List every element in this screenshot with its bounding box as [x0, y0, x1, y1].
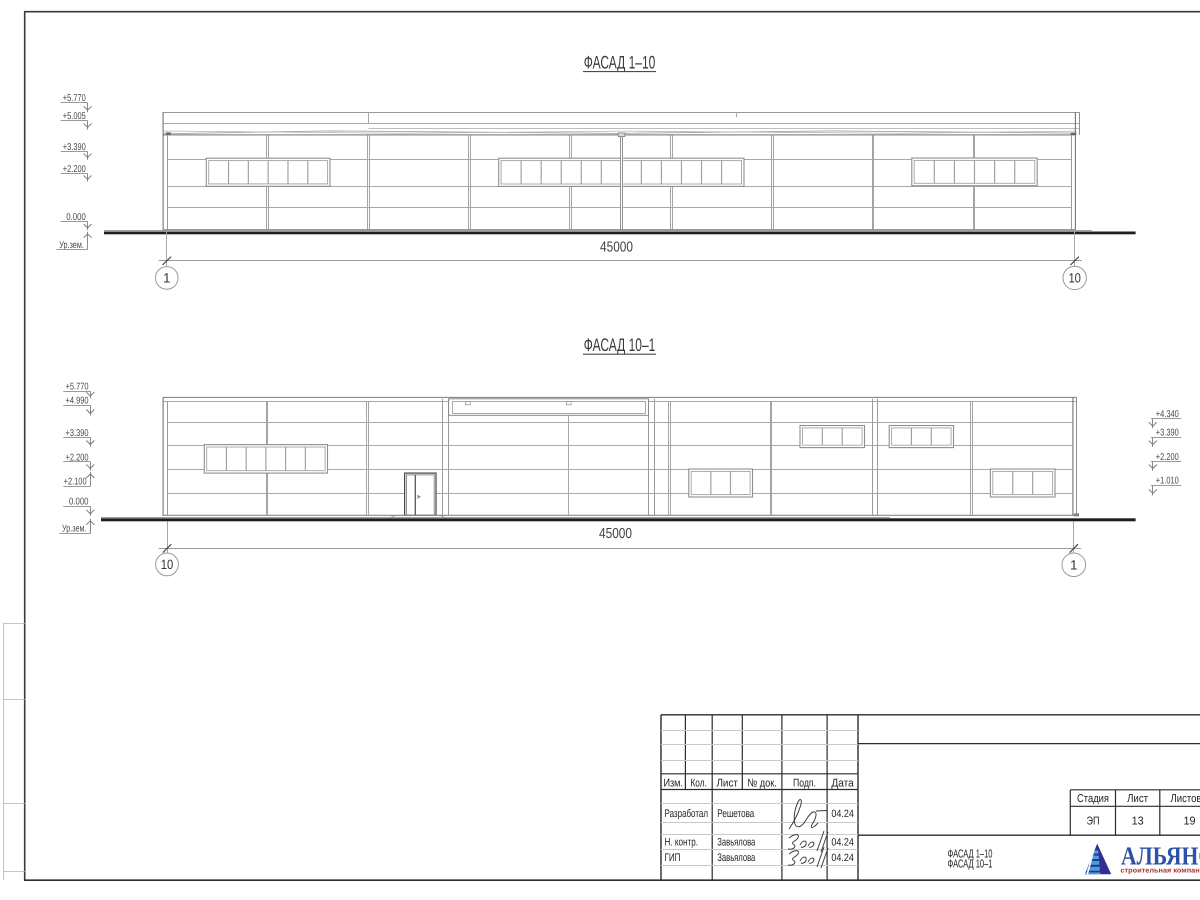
- svg-text:ГИП: ГИП: [665, 852, 681, 864]
- svg-text:Н. контр.: Н. контр.: [665, 837, 699, 849]
- svg-text:ФАСАД 1–10: ФАСАД 1–10: [584, 53, 656, 73]
- svg-text:Подп.: Подп.: [793, 777, 816, 789]
- svg-text:45000: 45000: [599, 526, 632, 542]
- svg-text:№ док.: № док.: [747, 777, 777, 789]
- svg-text:1: 1: [1070, 558, 1078, 573]
- svg-text:10: 10: [1068, 271, 1081, 286]
- svg-text:Завьялова: Завьялова: [717, 837, 756, 849]
- svg-text:ФАСАД 10–1: ФАСАД 10–1: [584, 335, 656, 355]
- svg-text:ФАСАД 10–1: ФАСАД 10–1: [948, 858, 993, 871]
- svg-text:АЛЬЯНС: АЛЬЯНС: [1121, 841, 1200, 870]
- svg-text:Листов: Листов: [1171, 793, 1200, 805]
- svg-text:строительная компания: строительная компания: [1121, 867, 1200, 874]
- svg-text:Завьялова: Завьялова: [717, 852, 756, 864]
- svg-text:19: 19: [1184, 816, 1196, 828]
- svg-text:Изм.: Изм.: [663, 777, 683, 789]
- svg-text:+2.100: +2.100: [64, 477, 87, 488]
- svg-text:+5.770: +5.770: [66, 382, 89, 393]
- svg-text:Лист: Лист: [1127, 793, 1149, 805]
- svg-text:Кол.: Кол.: [690, 777, 707, 789]
- svg-text:Решетова: Решетова: [717, 808, 755, 820]
- svg-text:04.24: 04.24: [831, 837, 854, 849]
- svg-text:10: 10: [161, 557, 174, 572]
- svg-text:Дата: Дата: [831, 777, 854, 789]
- svg-text:04.24: 04.24: [831, 808, 854, 820]
- svg-text:45000: 45000: [600, 239, 633, 255]
- svg-text:Разработал: Разработал: [665, 808, 709, 820]
- svg-text:+1.010: +1.010: [1156, 476, 1179, 487]
- svg-text:13: 13: [1132, 816, 1144, 828]
- svg-text:0.000: 0.000: [69, 497, 89, 508]
- svg-text:Стадия: Стадия: [1077, 793, 1109, 805]
- svg-text:Лист: Лист: [716, 777, 738, 789]
- svg-text:Ур.зем.: Ур.зем.: [62, 524, 87, 535]
- svg-text:1: 1: [163, 271, 171, 286]
- svg-text:+3.390: +3.390: [1156, 428, 1179, 439]
- svg-text:ЭП: ЭП: [1087, 816, 1100, 828]
- svg-text:04.24: 04.24: [831, 852, 854, 864]
